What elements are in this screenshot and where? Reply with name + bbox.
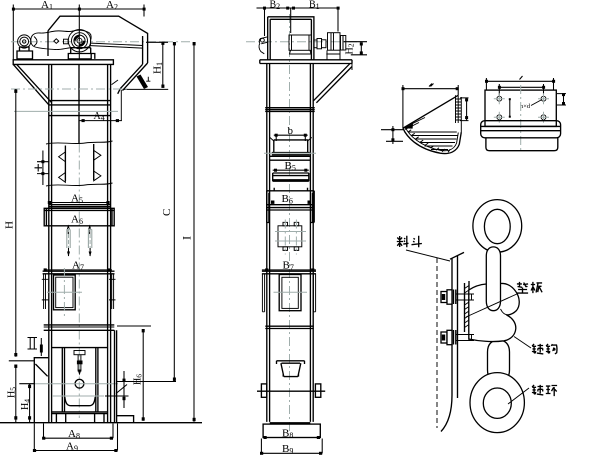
svg-text:C: C (161, 209, 173, 216)
svg-text:n×d: n×d (520, 103, 531, 110)
svg-text:A4: A4 (94, 111, 105, 123)
svg-text:B2: B2 (270, 0, 281, 11)
svg-text:A2: A2 (106, 0, 118, 12)
svg-text:H5: H5 (7, 387, 18, 398)
svg-text:H2: H2 (345, 43, 356, 54)
svg-text:H4: H4 (20, 399, 31, 410)
svg-text:A1: A1 (41, 0, 53, 12)
svg-text:I: I (180, 236, 194, 240)
svg-text:H: H (4, 221, 16, 229)
svg-text:b: b (288, 125, 294, 137)
svg-text:B1: B1 (309, 0, 320, 11)
svg-text:H6: H6 (133, 374, 144, 385)
